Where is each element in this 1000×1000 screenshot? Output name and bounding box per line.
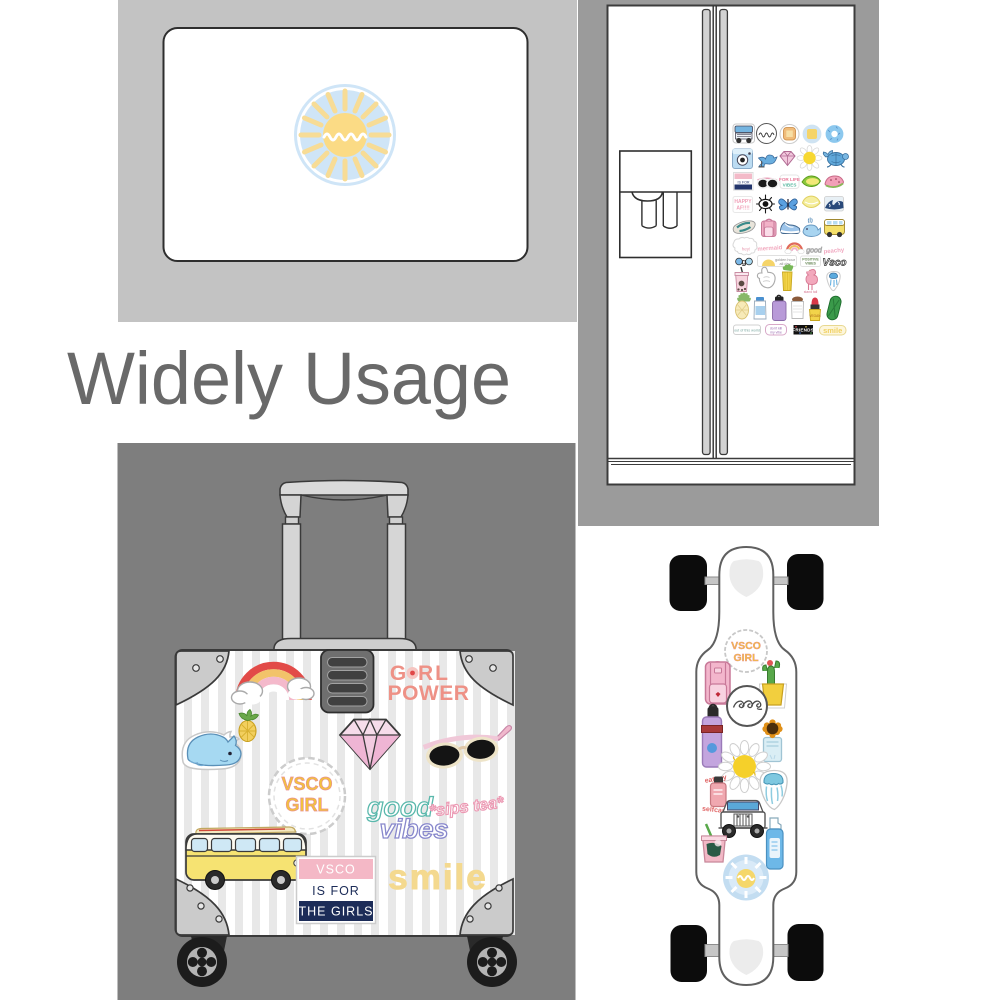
svg-text:stand tall: stand tall xyxy=(804,290,818,294)
svg-text:smile: smile xyxy=(388,858,488,897)
svg-text:my vibe: my vibe xyxy=(770,330,782,334)
svg-text:good: good xyxy=(806,248,823,255)
svg-text:IS FOR: IS FOR xyxy=(312,884,360,898)
svg-text:VSCO: VSCO xyxy=(731,640,761,652)
svg-text:VEGAN: VEGAN xyxy=(809,314,821,318)
svg-text:IS FOR: IS FOR xyxy=(738,181,750,185)
svg-text:hey!: hey! xyxy=(742,247,751,252)
svg-text:Widely Usage: Widely Usage xyxy=(67,337,511,420)
svg-text:VIBES: VIBES xyxy=(805,262,816,266)
svg-text:VSCO: VSCO xyxy=(316,863,355,877)
svg-text:FRIENDS: FRIENDS xyxy=(792,328,814,333)
svg-text:HAPPY: HAPPY xyxy=(734,199,752,205)
svg-text:THE GIRLS: THE GIRLS xyxy=(299,905,374,919)
svg-text:out of this world: out of this world xyxy=(734,329,760,333)
svg-text:VSCO: VSCO xyxy=(281,774,332,794)
svg-text:POWER: POWER xyxy=(388,682,470,705)
svg-text:VIBES: VIBES xyxy=(783,183,797,188)
svg-text:GIRL: GIRL xyxy=(733,652,759,664)
svg-text:AF!!!!: AF!!!! xyxy=(736,206,750,212)
svg-text:GIRL: GIRL xyxy=(286,795,329,815)
svg-text:smile: smile xyxy=(823,326,842,335)
svg-text:FOR LIFE: FOR LIFE xyxy=(779,177,800,182)
svg-text:Vsco: Vsco xyxy=(823,258,847,269)
